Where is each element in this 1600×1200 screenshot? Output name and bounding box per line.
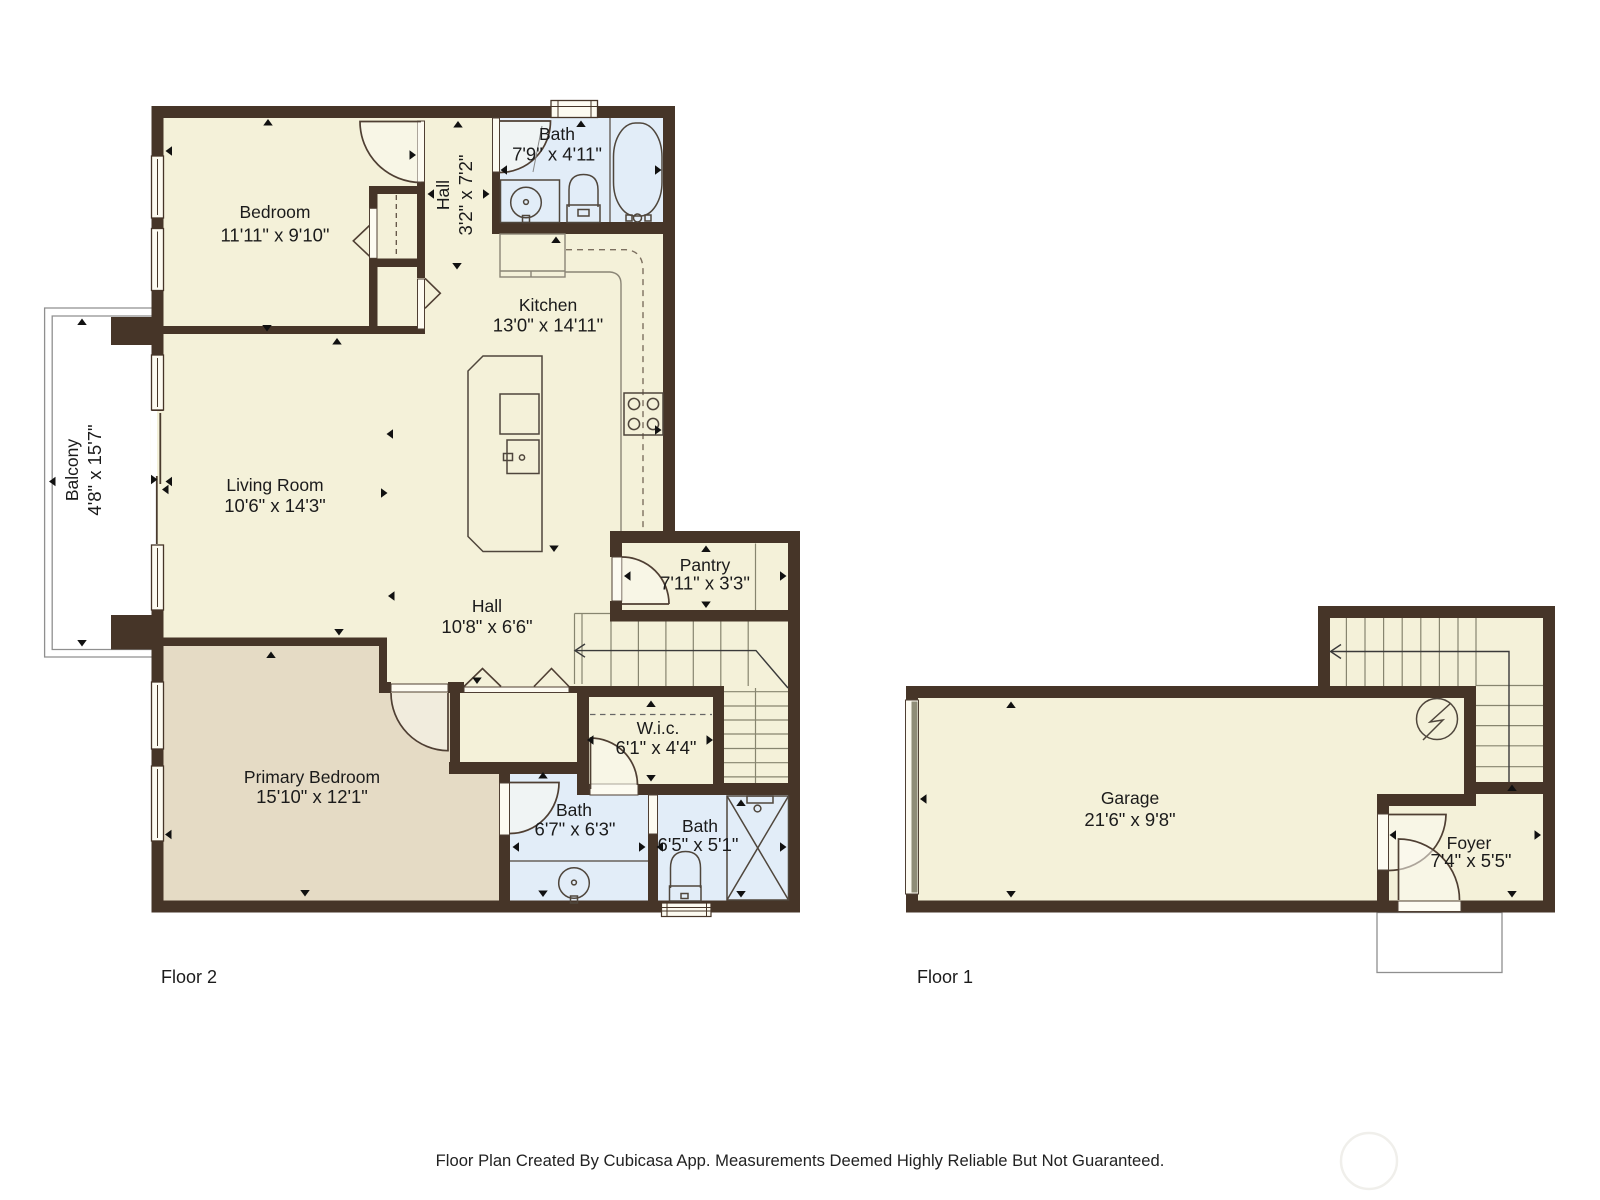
svg-text:6'5" x 5'1": 6'5" x 5'1" <box>658 834 739 855</box>
svg-text:Balcony: Balcony <box>62 439 82 502</box>
svg-text:Bedroom: Bedroom <box>239 202 310 222</box>
svg-text:Hall: Hall <box>472 596 502 616</box>
svg-text:Hall: Hall <box>433 180 453 210</box>
svg-text:7'9" x 4'11": 7'9" x 4'11" <box>512 144 602 165</box>
svg-text:Primary Bedroom: Primary Bedroom <box>244 767 380 787</box>
svg-text:Bath: Bath <box>682 816 718 836</box>
svg-text:W.i.c.: W.i.c. <box>637 718 680 738</box>
svg-text:15'10" x 12'1": 15'10" x 12'1" <box>256 786 368 807</box>
svg-text:Garage: Garage <box>1101 788 1159 808</box>
svg-text:7'4" x 5'5": 7'4" x 5'5" <box>1431 850 1512 871</box>
svg-text:Bath: Bath <box>556 800 592 820</box>
svg-text:3'2" x 7'2": 3'2" x 7'2" <box>455 155 476 236</box>
svg-text:6'1" x 4'4": 6'1" x 4'4" <box>616 737 697 758</box>
svg-text:Kitchen: Kitchen <box>519 295 577 315</box>
svg-text:Living Room: Living Room <box>226 475 323 495</box>
svg-text:21'6" x 9'8": 21'6" x 9'8" <box>1084 809 1175 830</box>
svg-text:Floor 1: Floor 1 <box>917 967 973 987</box>
svg-text:11'11" x 9'10": 11'11" x 9'10" <box>220 225 329 246</box>
svg-text:7'11" x 3'3": 7'11" x 3'3" <box>660 573 750 594</box>
svg-text:6'7" x 6'3": 6'7" x 6'3" <box>535 819 616 840</box>
svg-text:10'6" x 14'3": 10'6" x 14'3" <box>224 495 325 516</box>
svg-text:4'8" x 15'7": 4'8" x 15'7" <box>84 424 105 515</box>
svg-text:10'8" x 6'6": 10'8" x 6'6" <box>441 616 532 637</box>
svg-text:Floor 2: Floor 2 <box>161 967 217 987</box>
svg-text:13'0" x 14'11": 13'0" x 14'11" <box>493 315 603 336</box>
svg-text:Bath: Bath <box>539 124 575 144</box>
svg-text:Floor Plan Created By Cubicasa: Floor Plan Created By Cubicasa App. Meas… <box>436 1151 1165 1170</box>
